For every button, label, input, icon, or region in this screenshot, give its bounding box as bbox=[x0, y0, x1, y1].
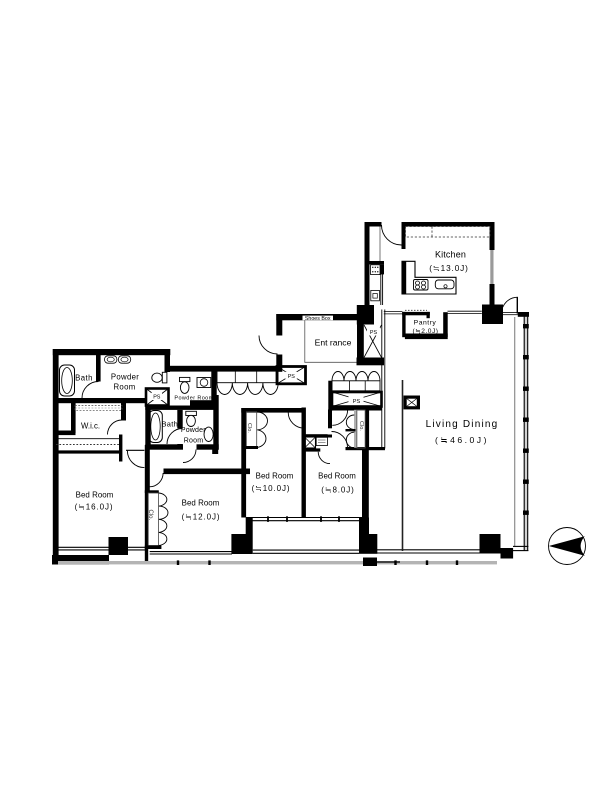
svg-text:Bed Room: Bed Room bbox=[182, 499, 220, 508]
svg-text:(≒46.0J): (≒46.0J) bbox=[435, 435, 489, 445]
svg-text:Bath: Bath bbox=[75, 373, 93, 382]
svg-text:(≒10.0J): (≒10.0J) bbox=[252, 484, 291, 493]
svg-text:(≒12.0J): (≒12.0J) bbox=[182, 512, 221, 521]
svg-text:(≒16.0J): (≒16.0J) bbox=[75, 503, 114, 512]
svg-text:Pantry: Pantry bbox=[414, 320, 437, 327]
svg-text:Clo.: Clo. bbox=[246, 423, 252, 433]
svg-text:Kitchen: Kitchen bbox=[435, 250, 466, 260]
svg-text:Bed Room: Bed Room bbox=[256, 471, 294, 480]
svg-text:Ent rance: Ent rance bbox=[315, 338, 352, 348]
svg-text:Room: Room bbox=[114, 383, 136, 392]
svg-text:Powder: Powder bbox=[181, 427, 206, 434]
svg-text:Shoes Box: Shoes Box bbox=[305, 316, 331, 322]
svg-text:Room: Room bbox=[184, 437, 203, 444]
svg-text:Clo.: Clo. bbox=[147, 510, 153, 521]
svg-text:PS: PS bbox=[153, 395, 161, 401]
svg-text:Powder Room: Powder Room bbox=[174, 395, 213, 401]
svg-text:W.i.c.: W.i.c. bbox=[81, 422, 100, 431]
svg-text:Powder: Powder bbox=[111, 373, 139, 382]
svg-text:(≒8.0J): (≒8.0J) bbox=[321, 485, 354, 494]
svg-text:(≒13.0J): (≒13.0J) bbox=[429, 264, 469, 273]
svg-text:Bed Room: Bed Room bbox=[318, 471, 356, 480]
svg-text:PS: PS bbox=[288, 374, 296, 380]
svg-text:Bath: Bath bbox=[161, 419, 178, 428]
svg-text:PS: PS bbox=[370, 330, 378, 336]
svg-text:Clo.: Clo. bbox=[358, 421, 364, 431]
svg-text:Bed Room: Bed Room bbox=[76, 490, 114, 499]
svg-text:(≒2.0J): (≒2.0J) bbox=[413, 328, 439, 335]
svg-text:Living Dining: Living Dining bbox=[426, 419, 499, 430]
svg-text:PS: PS bbox=[353, 399, 361, 405]
